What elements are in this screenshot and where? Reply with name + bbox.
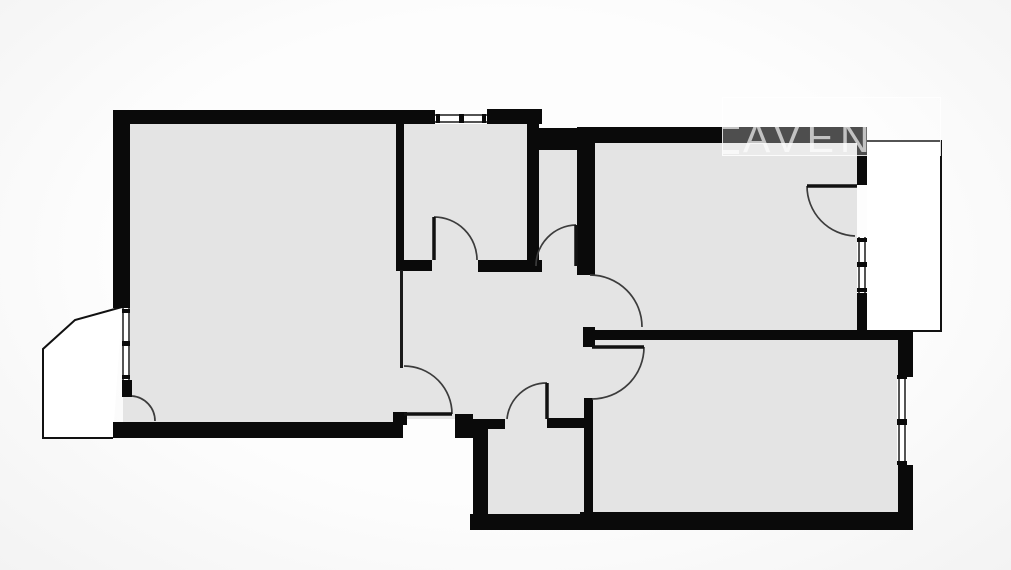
balcony-right: [867, 141, 941, 331]
window-rightroom-balcony-tick: [857, 288, 867, 292]
watermark-box: AVEN: [722, 97, 941, 156]
wall-br-right-lower: [898, 465, 913, 512]
room-bottom-middle: [473, 419, 593, 515]
wall-bottomrooms-shared: [584, 398, 593, 515]
wall-middle-bottom-left: [396, 260, 432, 271]
wall-living-bottom: [113, 422, 403, 438]
floorplan-page: AVEN: [0, 0, 1011, 570]
wc-corridor: [538, 150, 577, 262]
wall-bm-left: [473, 423, 488, 515]
wall-bm-top-right: [547, 418, 593, 428]
window-living-left-tick: [122, 341, 130, 346]
room-top-middle: [404, 123, 528, 261]
window-top-middle-tick: [436, 114, 440, 123]
wall-rightroom-left: [577, 127, 595, 275]
wall-middle-wc-shared: [527, 110, 539, 271]
wall-br-right-upper: [898, 330, 913, 377]
wall-top-main: [113, 110, 435, 124]
wall-middle-bottom-right: [478, 260, 532, 272]
watermark-text: AVEN: [743, 122, 876, 155]
wall-rightroom-right-lower: [857, 293, 867, 332]
room-top-right: [593, 143, 857, 330]
wall-left-upper: [113, 110, 130, 308]
window-bottomright-tick: [897, 461, 907, 465]
watermark-logo: AVEN: [722, 122, 930, 155]
floorplan-drawing: [0, 0, 1011, 570]
room-bottom-right: [585, 340, 898, 514]
window-top-middle-tick: [482, 114, 486, 123]
window-rightroom-balcony-tick: [857, 238, 867, 242]
wall-br-bottom: [580, 512, 913, 530]
window-living-left-tick: [122, 375, 130, 379]
watermark-bracket-icon: [722, 125, 739, 154]
hallway: [397, 260, 593, 419]
wall-wc-top: [539, 128, 577, 150]
window-bottomright-tick: [897, 375, 907, 379]
wall-left-stub: [122, 380, 132, 397]
window-top-middle-tick: [459, 114, 464, 123]
living-room: [123, 122, 397, 423]
window-living-left-tick: [122, 309, 130, 313]
wall-divider-right-rooms: [585, 330, 913, 340]
wall-bm-bottom: [470, 514, 593, 530]
balcony-left: [43, 307, 122, 438]
window-rightroom-balcony-tick: [857, 262, 867, 267]
window-bottomright-tick: [897, 419, 907, 425]
wall-living-middle-shared: [396, 110, 404, 270]
thin-wall-living-right: [400, 270, 403, 368]
